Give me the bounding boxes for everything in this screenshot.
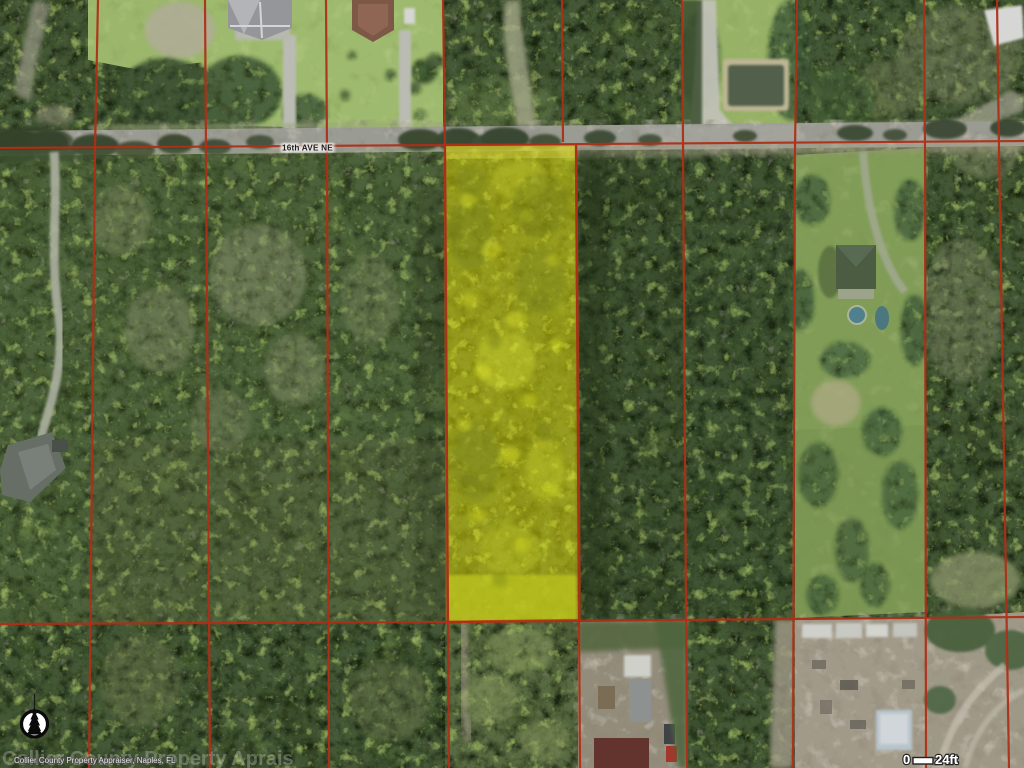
- svg-text:Collier County Property Apprai: Collier County Property Appraiser, Naple…: [14, 756, 176, 765]
- svg-text:16th AVE NE: 16th AVE NE: [282, 144, 333, 153]
- svg-text:24ft: 24ft: [935, 752, 959, 767]
- svg-text:0: 0: [903, 752, 910, 767]
